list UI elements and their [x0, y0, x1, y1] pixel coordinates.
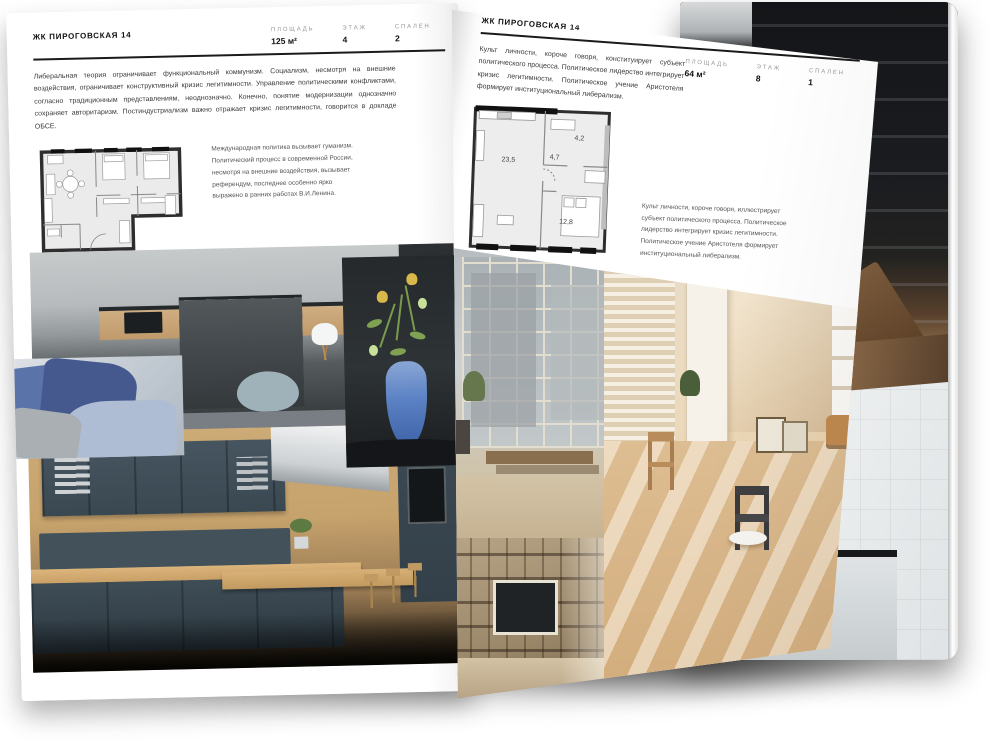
right-photo-collage	[452, 248, 876, 700]
building-view	[471, 273, 536, 427]
light-blue-cushion	[65, 399, 177, 459]
stat-area-label: ПЛОЩАДЬ	[685, 59, 729, 68]
white-door	[686, 272, 729, 443]
header-rule	[33, 49, 445, 60]
stat-area-label: ПЛОЩАДЬ	[271, 26, 314, 33]
flower-leaf	[365, 317, 382, 329]
picture-frame	[782, 421, 808, 453]
magazine-spread-mockup: ЖК ПИРОГОВСКАЯ 14 ПЛОЩАДЬ 125 м² ЭТАЖ 4 …	[0, 0, 991, 740]
flower-stem	[405, 286, 416, 332]
yellow-bloom	[377, 290, 388, 302]
flower-stem	[379, 304, 396, 348]
left-stats: ПЛОЩАДЬ 125 м² ЭТАЖ 4 СПАЛЕН 2	[271, 23, 445, 46]
room-size-living: 23,5	[501, 156, 515, 164]
white-bowl	[729, 531, 767, 545]
photo-flower-vase	[342, 255, 461, 468]
left-plan-row: Международная политика вызывает гуманизм…	[35, 135, 450, 260]
dishes-in-cabinet	[54, 455, 90, 494]
room-size-bath: 4,2	[574, 135, 584, 142]
right-page: ЖК ПИРОГОВСКАЯ 14 Культ личности, короче…	[452, 0, 884, 700]
photo-sofa-cushions	[14, 355, 184, 459]
stat-floor-label: ЭТАЖ	[756, 64, 781, 72]
stat-area: ПЛОЩАДЬ 125 м²	[271, 26, 315, 46]
left-page: ЖК ПИРОГОВСКАЯ 14 ПЛОЩАДЬ 125 м² ЭТАЖ 4 …	[6, 3, 473, 701]
stat-bedrooms-label: СПАЛЕН	[809, 68, 845, 77]
herb-leaves	[290, 518, 312, 532]
dark-chair	[456, 420, 470, 454]
stat-bedrooms-label: СПАЛЕН	[395, 24, 431, 31]
stat-floor-value: 8	[755, 73, 780, 85]
window-light-glow	[561, 538, 608, 700]
left-page-header: ЖК ПИРОГОВСКАЯ 14 ПЛОЩАДЬ 125 м² ЭТАЖ 4 …	[33, 23, 445, 51]
right-page-body: 23,5 4,7 4,2 12,8 Культ личности, короче…	[462, 96, 868, 271]
stat-area-value: 125 м²	[271, 35, 315, 46]
stat-bedrooms: СПАЛЕН 2	[395, 24, 431, 44]
stat-floor-label: ЭТАЖ	[342, 25, 367, 32]
right-plan-row: 23,5 4,7 4,2 12,8 Культ личности, короче…	[462, 96, 868, 271]
leaning-picture-frames	[756, 415, 816, 449]
stat-bedrooms-value: 2	[395, 33, 431, 44]
left-note-paragraph: Международная политика вызывает гуманизм…	[211, 141, 362, 203]
flower-leaf	[389, 348, 406, 357]
floorplan-125	[35, 141, 188, 260]
chair-legs	[312, 344, 338, 361]
page-title: ЖК ПИРОГОВСКАЯ 14	[33, 30, 132, 41]
white-chair	[311, 323, 337, 346]
gray-pouf	[236, 371, 299, 412]
flower-leaf	[409, 330, 426, 341]
stat-floor: ЭТАЖ 4	[342, 25, 367, 45]
stat-area-value: 64 м²	[684, 68, 728, 81]
wood-bench	[486, 451, 592, 463]
floorplan-64: 23,5 4,7 4,2 12,8	[462, 96, 618, 262]
photo-shelving-tv	[452, 538, 608, 700]
wall-oven	[407, 467, 447, 525]
wooden-chair	[648, 432, 674, 490]
stat-bedrooms-value: 1	[808, 77, 844, 90]
bar-stool	[407, 563, 422, 597]
page-edge-strip	[948, 2, 958, 660]
yellow-bloom	[406, 273, 417, 285]
green-bud	[418, 298, 427, 309]
hanging-plant	[463, 371, 485, 401]
peninsula-countertop	[222, 568, 413, 589]
black-round-table	[342, 437, 461, 468]
potted-plant	[680, 370, 700, 396]
flower-stem	[395, 294, 402, 340]
tv-screen	[493, 580, 558, 635]
herb-pot	[295, 536, 309, 548]
stat-floor-value: 4	[342, 34, 367, 45]
room-size-bedroom: 12,8	[559, 219, 573, 227]
photo-bottom-shadow	[32, 610, 467, 673]
slate-backsplash	[39, 528, 291, 570]
blue-glass-vase	[385, 361, 428, 446]
bar-stool	[386, 568, 401, 602]
right-note-paragraph: Культ личности, короче говоря, иллюстрир…	[640, 201, 792, 265]
kitchen-oven	[124, 312, 163, 334]
bar-stool	[364, 574, 379, 608]
room-size-hall: 4,7	[550, 154, 560, 161]
green-bud	[369, 345, 378, 356]
left-intro-paragraph: Либеральная теория ограничивает функцион…	[34, 63, 397, 134]
dishes-in-cabinet	[237, 456, 268, 490]
herb-plant	[290, 522, 313, 548]
